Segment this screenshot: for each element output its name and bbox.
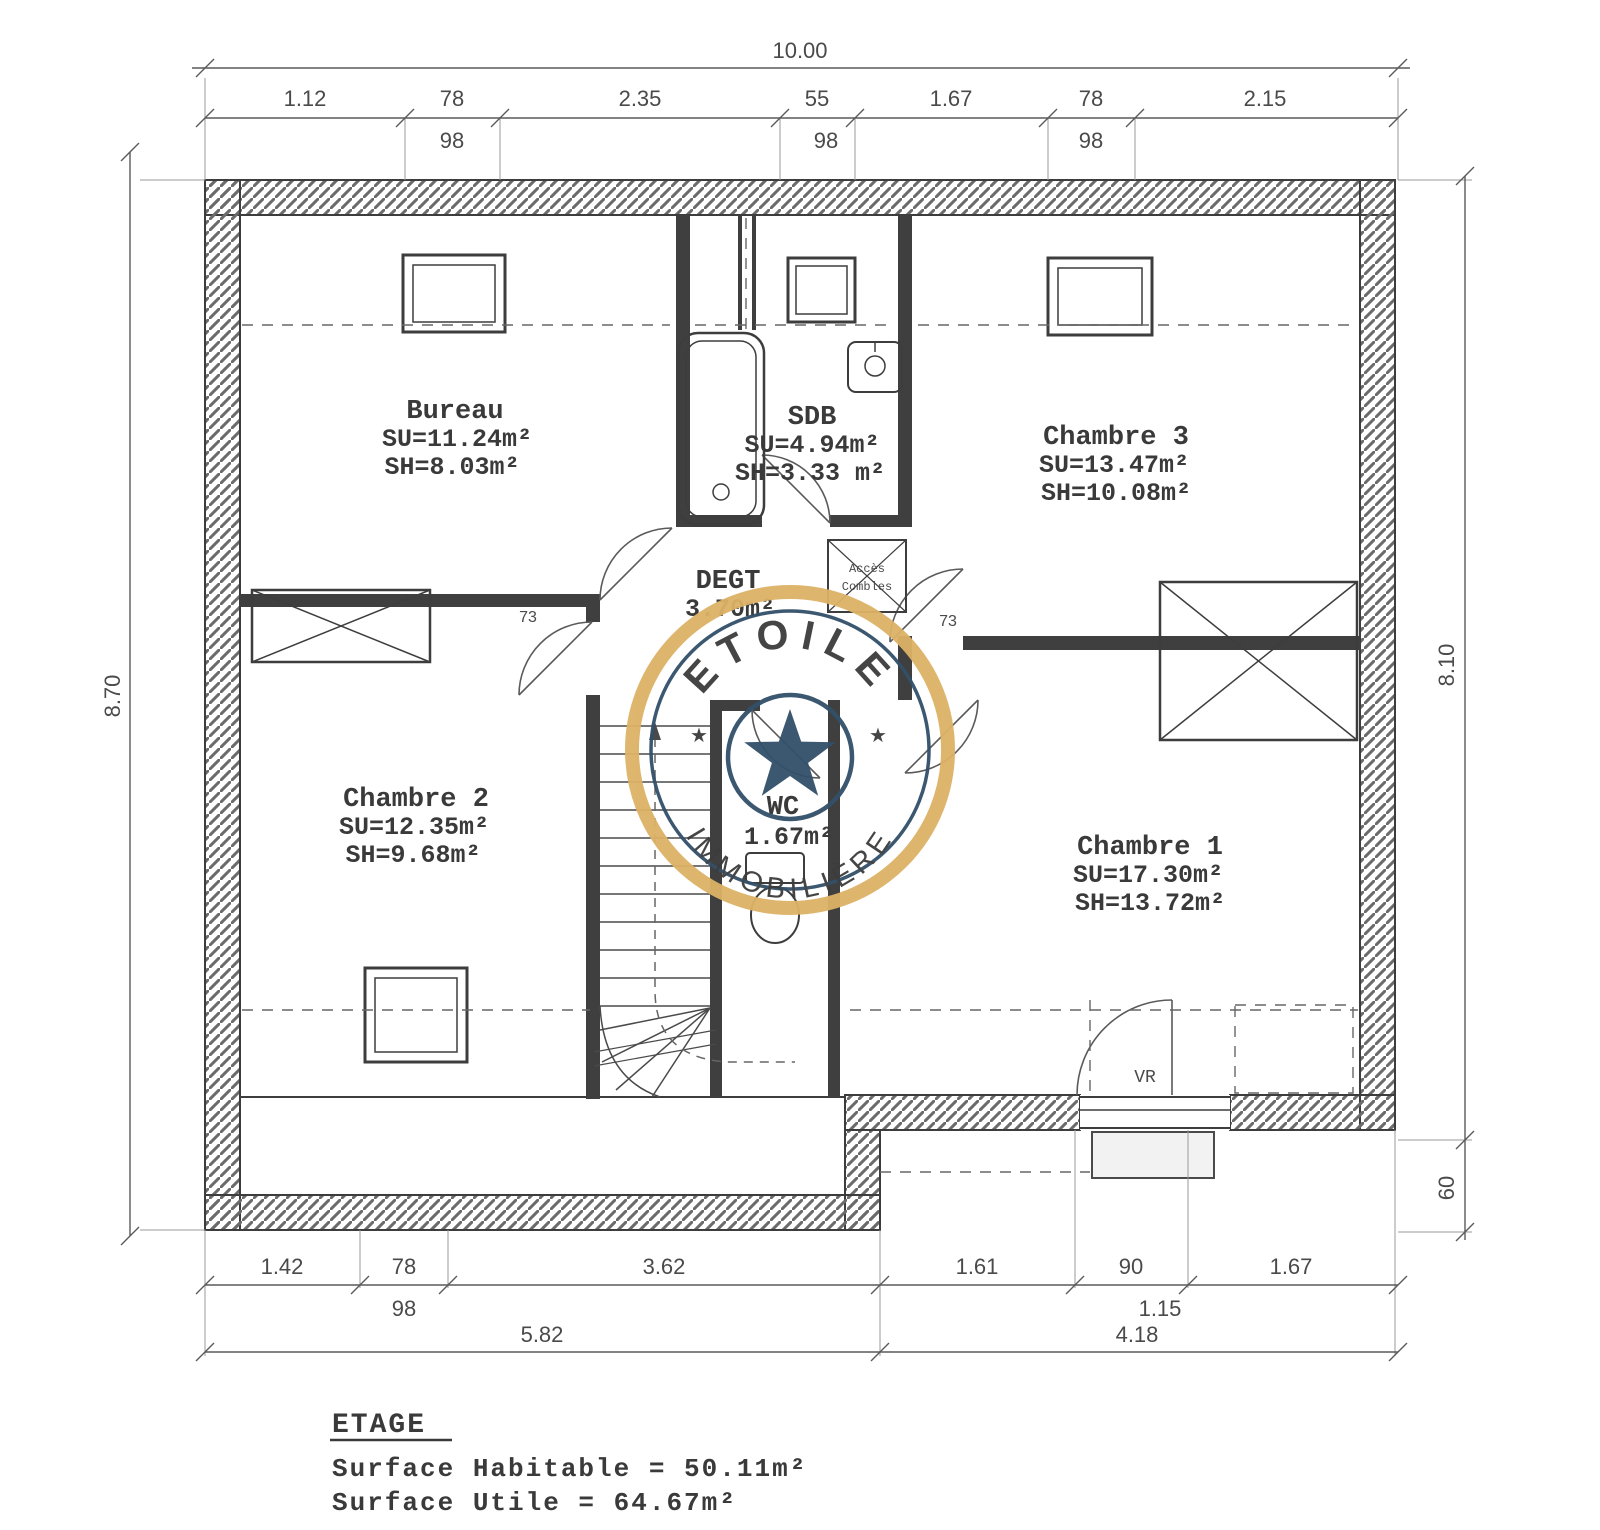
chambre3-su: SU=13.47m²	[1039, 451, 1189, 480]
star-right-icon: ★	[869, 723, 887, 747]
chambre2-name: Chambre 2	[343, 785, 489, 815]
summary-line-1: Surface Habitable = 50.11m²	[332, 1454, 807, 1484]
wc-area: 1.67m²	[744, 823, 834, 852]
dim-bot-total-2: 4.18	[1116, 1322, 1159, 1347]
dim-bot-5: 90	[1119, 1254, 1143, 1279]
dimension-texts: 10.00 1.12 78 2.35 55 1.67 78 2.15 98 98…	[100, 38, 1459, 1347]
bathtub	[678, 333, 764, 525]
dim-top-4: 55	[805, 86, 829, 111]
dim-top-7: 2.15	[1244, 86, 1287, 111]
wall-left	[205, 180, 240, 1230]
bureau-sh: SH=8.03m²	[384, 453, 519, 482]
bureau-su: SU=11.24m²	[382, 425, 532, 454]
dim-bot-6: 1.67	[1270, 1254, 1313, 1279]
dim-top-1: 1.12	[284, 86, 327, 111]
door-width-left: 73	[519, 609, 537, 626]
sdb-sh: SH=3.33 m²	[735, 459, 885, 488]
dim-top-6: 78	[1079, 86, 1103, 111]
acces-combles-label-1: Accès	[849, 562, 885, 576]
star-left-icon: ★	[690, 723, 708, 747]
wall-sdb-bottom-b	[830, 515, 912, 527]
velux-chambre2	[365, 968, 467, 1062]
watermark-stamp: ETOILE IMMOBILIÈRE ★ ★	[632, 592, 948, 908]
summary-title: ETAGE	[332, 1410, 426, 1441]
wall-ch2-side	[586, 695, 600, 1099]
chambre2-sh: SH=9.68m²	[345, 841, 480, 870]
dim-bot-sub-1: 98	[392, 1296, 416, 1321]
dim-bot-4: 1.61	[956, 1254, 999, 1279]
sdb-su: SU=4.94m²	[744, 431, 879, 460]
dim-bot-2: 78	[392, 1254, 416, 1279]
dimension-lines	[121, 59, 1474, 1361]
wall-bureau-bottom	[240, 594, 600, 607]
floor-plan-svg: Bureau SU=11.24m² SH=8.03m² SDB SU=4.94m…	[0, 0, 1600, 1530]
dim-right-offset: 60	[1434, 1176, 1459, 1200]
wall-ch2-top	[586, 594, 600, 622]
dim-top-sub-2: 98	[814, 128, 838, 153]
chambre1-su: SU=17.30m²	[1073, 861, 1223, 890]
wall-right	[1360, 180, 1395, 1130]
dim-top-5: 1.67	[930, 86, 973, 111]
chambre1-name: Chambre 1	[1077, 833, 1223, 863]
door-swings	[519, 455, 1172, 1095]
velux-sdb	[788, 258, 855, 322]
dim-bot-total-1: 5.82	[521, 1322, 564, 1347]
wall-bottom-right-b	[1230, 1095, 1395, 1130]
dim-bot-1: 1.42	[261, 1254, 304, 1279]
dim-top-total: 10.00	[772, 38, 827, 63]
dim-top-2: 78	[440, 86, 464, 111]
dim-top-sub-1: 98	[440, 128, 464, 153]
stamp-star-icon	[744, 709, 835, 796]
exterior-walls	[205, 180, 1395, 1230]
chambre3-name: Chambre 3	[1043, 423, 1189, 453]
wall-ch1-top	[963, 636, 1360, 650]
conduit-line-a	[738, 215, 742, 330]
velux-chambre3	[1048, 258, 1152, 335]
sdb-name: SDB	[788, 403, 837, 433]
dim-top-sub-3: 98	[1079, 128, 1103, 153]
inner-boundaries	[240, 1097, 845, 1195]
wall-sdb-right	[898, 215, 912, 527]
vr-box	[1092, 1132, 1214, 1178]
chambre3-sh: SH=10.08m²	[1041, 479, 1191, 508]
wall-top	[205, 180, 1395, 215]
closet-chambre3	[1160, 582, 1357, 740]
velux-bureau	[403, 255, 505, 332]
dim-bot-sub-2: 1.15	[1139, 1296, 1182, 1321]
dim-bot-3: 3.62	[643, 1254, 686, 1279]
dim-top-3: 2.35	[619, 86, 662, 111]
window-vr	[1080, 1095, 1230, 1178]
dim-right-total: 8.10	[1434, 644, 1459, 687]
door-chambre2	[519, 622, 592, 695]
wall-bottom-right-a	[845, 1095, 1080, 1130]
vr-label: VR	[1134, 1068, 1156, 1088]
chambre2-su: SU=12.35m²	[339, 813, 489, 842]
chambre1-sh: SH=13.72m²	[1075, 889, 1225, 918]
acces-combles-label-2: Combles	[842, 580, 892, 594]
sink	[848, 342, 902, 392]
door-width-right: 73	[939, 613, 957, 630]
summary-line-2: Surface Utile = 64.67m²	[332, 1488, 737, 1518]
door-chambre1-window	[1077, 1000, 1172, 1095]
floor-plan-page: Bureau SU=11.24m² SH=8.03m² SDB SU=4.94m…	[0, 0, 1600, 1530]
dim-left-total: 8.70	[100, 675, 125, 718]
summary-block: ETAGE Surface Habitable = 50.11m² Surfac…	[330, 1410, 807, 1518]
door-bureau	[600, 528, 672, 600]
wall-bottom-left	[205, 1195, 880, 1230]
conduit-line-b	[752, 215, 756, 330]
bureau-name: Bureau	[406, 397, 503, 427]
